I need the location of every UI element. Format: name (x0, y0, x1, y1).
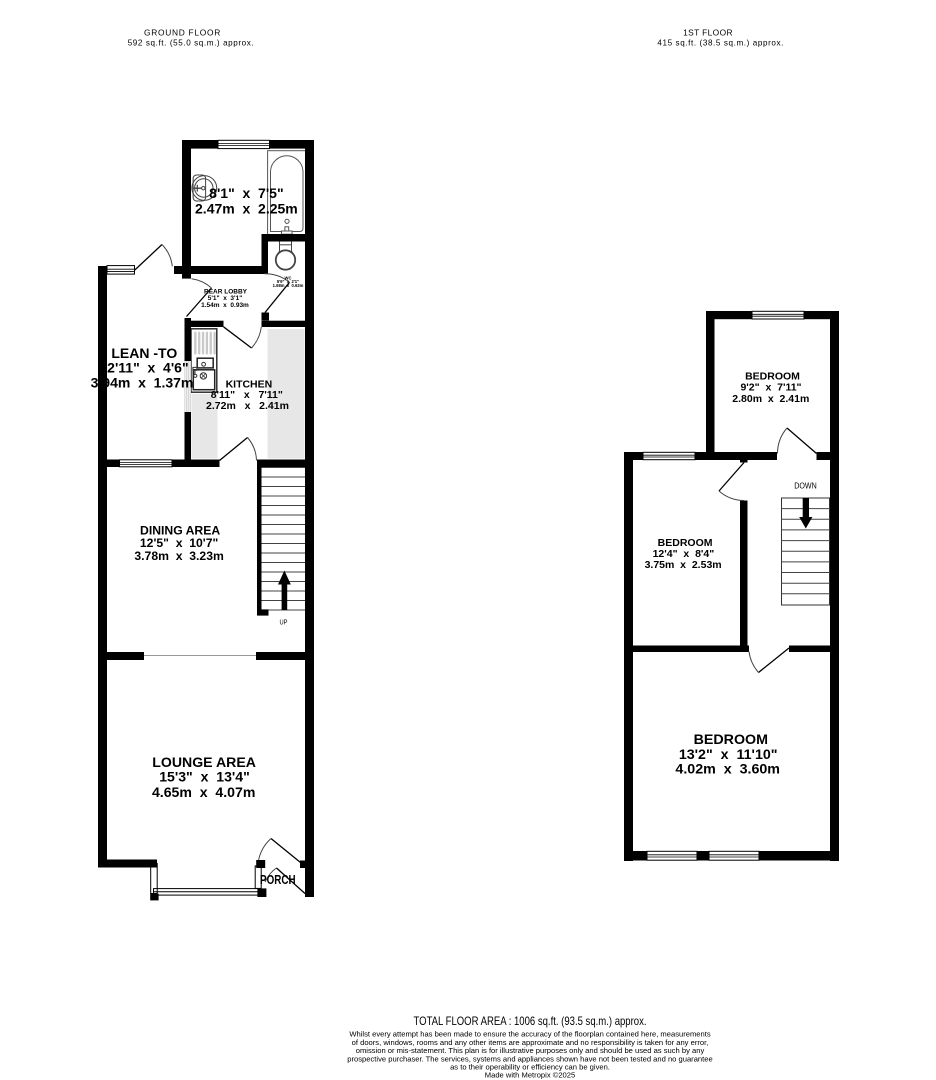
svg-text:12'11" x 4'6": 12'11" x 4'6" (99, 360, 188, 376)
svg-text:LEAN -TO: LEAN -TO (111, 345, 177, 361)
svg-text:5'1" x 3'1": 5'1" x 3'1" (208, 295, 243, 302)
svg-text:2.47m x 2.25m: 2.47m x 2.25m (195, 201, 298, 217)
svg-text:1.68m x 0.63m: 1.68m x 0.63m (273, 283, 304, 288)
svg-text:GROUND FLOOR: GROUND FLOOR (144, 28, 221, 38)
svg-text:8'1" x 7'5": 8'1" x 7'5" (209, 185, 283, 201)
svg-text:9'2" x 7'11": 9'2" x 7'11" (740, 381, 801, 393)
svg-text:4.02m x 3.60m: 4.02m x 3.60m (675, 761, 780, 777)
svg-text:2.72m x 2.41m: 2.72m x 2.41m (206, 400, 289, 412)
svg-text:Made with Metropix ©2025: Made with Metropix ©2025 (485, 1070, 575, 1079)
svg-text:415 sq.ft. (38.5 sq.m.) approx: 415 sq.ft. (38.5 sq.m.) approx. (657, 38, 784, 47)
svg-text:1ST FLOOR: 1ST FLOOR (683, 28, 733, 38)
svg-text:DOWN: DOWN (794, 481, 817, 490)
svg-text:3.75m x 2.53m: 3.75m x 2.53m (645, 559, 722, 571)
svg-text:3.78m x 3.23m: 3.78m x 3.23m (134, 549, 224, 563)
svg-text:3.94m x 1.37m: 3.94m x 1.37m (91, 375, 194, 391)
svg-text:4.65m x 4.07m: 4.65m x 4.07m (152, 784, 255, 800)
svg-text:TOTAL FLOOR AREA : 1006 sq.ft.: TOTAL FLOOR AREA : 1006 sq.ft. (93.5 sq.… (414, 1014, 647, 1028)
svg-text:BEDROOM: BEDROOM (694, 732, 768, 748)
svg-text:13'2" x 11'10": 13'2" x 11'10" (679, 747, 778, 763)
svg-text:UP: UP (280, 618, 288, 627)
svg-text:15'3" x 13'4": 15'3" x 13'4" (159, 769, 250, 785)
svg-text:PORCH: PORCH (260, 872, 296, 887)
svg-text:592 sq.ft. (55.0 sq.m.) approx: 592 sq.ft. (55.0 sq.m.) approx. (128, 38, 255, 47)
svg-text:DINING AREA: DINING AREA (140, 523, 220, 537)
svg-text:2.80m x 2.41m: 2.80m x 2.41m (732, 393, 809, 405)
svg-text:1.54m x 0.93m: 1.54m x 0.93m (201, 302, 249, 309)
svg-text:12'4" x 8'4": 12'4" x 8'4" (653, 548, 715, 560)
